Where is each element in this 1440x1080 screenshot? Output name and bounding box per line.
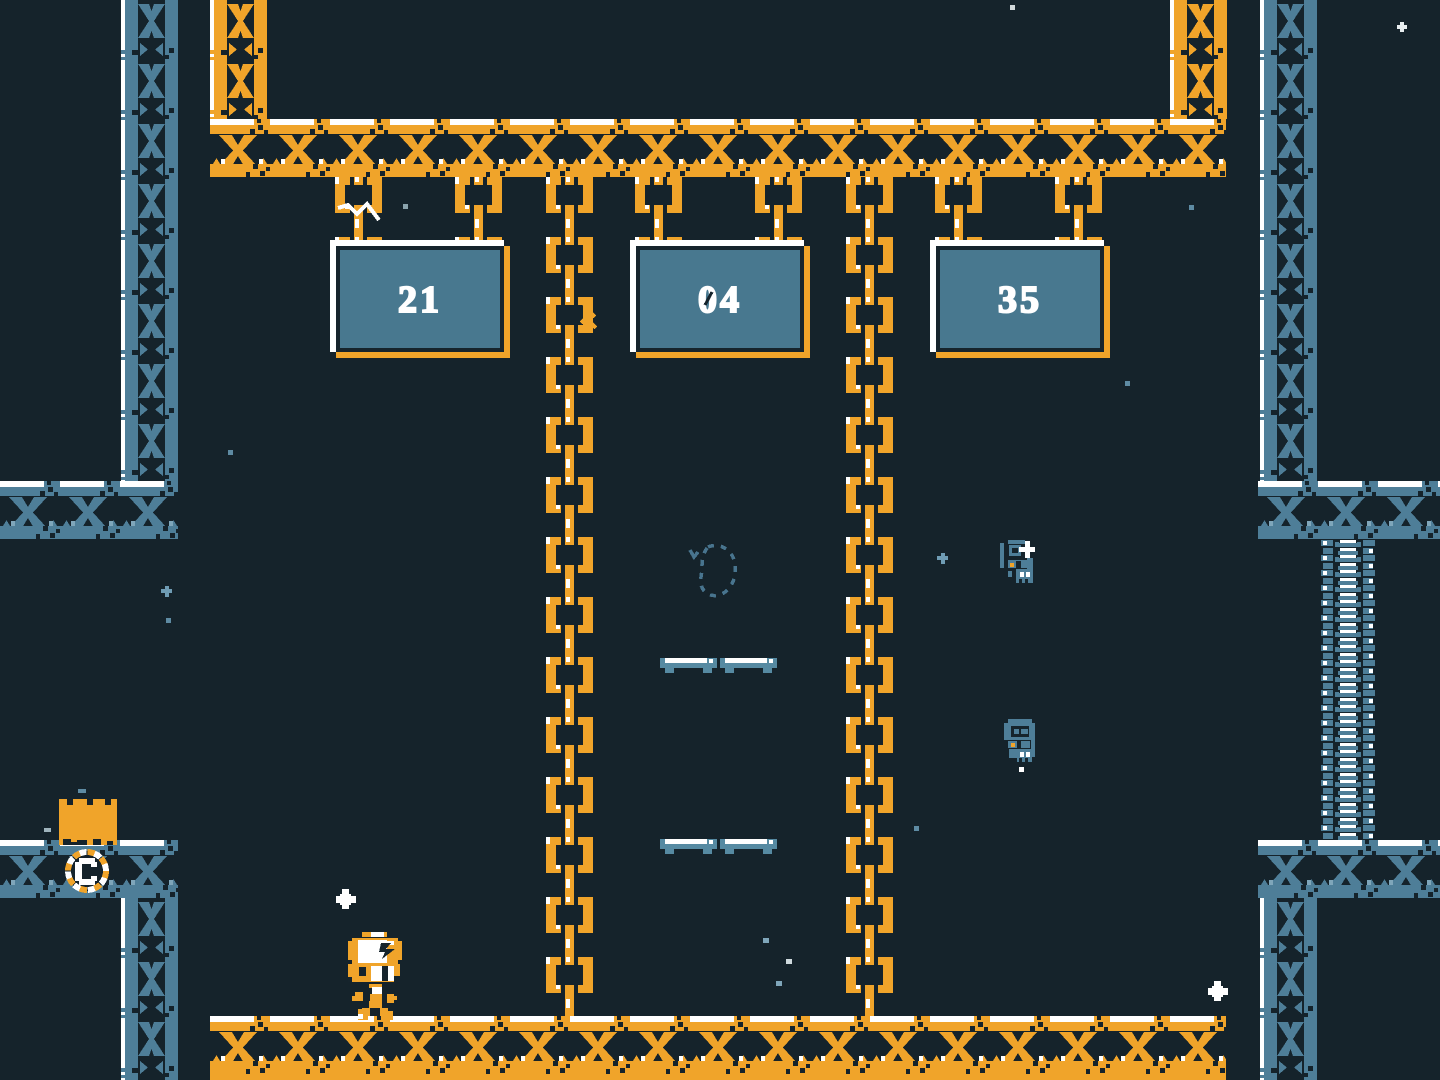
svg-text:21: 21 — [398, 279, 442, 321]
svg-text:35: 35 — [998, 279, 1042, 321]
svg-text:04: 04 — [698, 279, 742, 321]
